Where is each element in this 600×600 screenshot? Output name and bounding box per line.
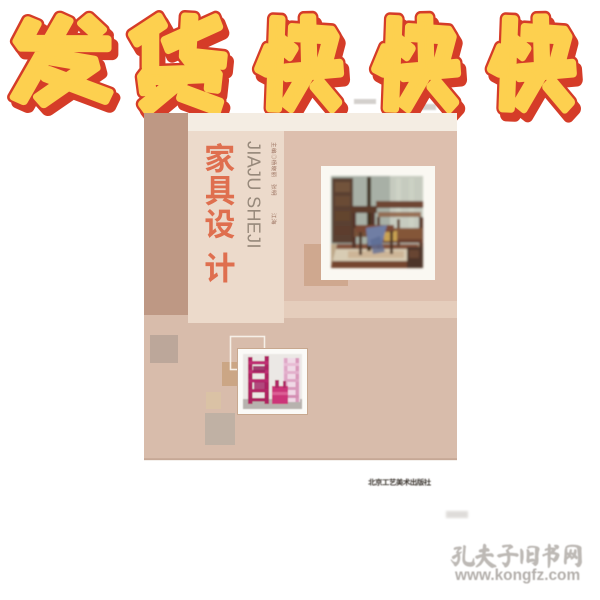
svg-text:JIAJU SHEJI: JIAJU SHEJI [244,141,264,249]
svg-text:www.kongfz.com: www.kongfz.com [454,567,580,584]
